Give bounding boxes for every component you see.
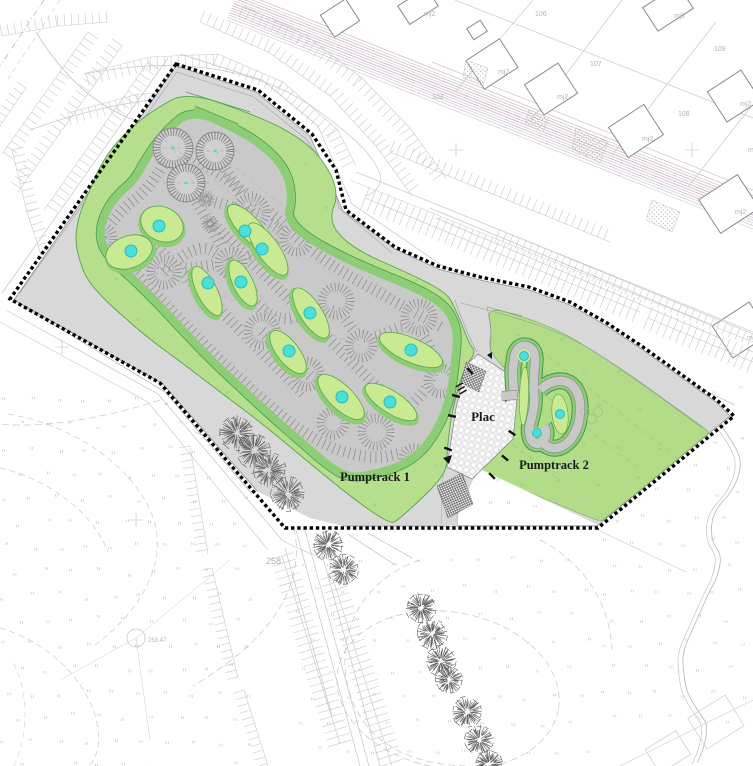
svg-text:mj2: mj2 xyxy=(674,13,685,20)
svg-text:mj2: mj2 xyxy=(498,69,509,76)
svg-text:mj2: mj2 xyxy=(735,209,746,216)
svg-text:mj2: mj2 xyxy=(642,136,653,143)
svg-text:107: 107 xyxy=(590,61,602,68)
svg-text:Pumptrack 1: Pumptrack 1 xyxy=(340,470,410,484)
svg-text:106: 106 xyxy=(535,11,547,18)
svg-text:258: 258 xyxy=(266,556,281,566)
svg-text:mj2: mj2 xyxy=(740,101,751,108)
svg-text:Pumptrack 2: Pumptrack 2 xyxy=(519,458,589,472)
svg-text:mj2: mj2 xyxy=(557,94,568,101)
svg-text:253.47: 253.47 xyxy=(148,638,167,644)
svg-text:m]2: m]2 xyxy=(748,147,753,154)
svg-text:103: 103 xyxy=(432,94,444,101)
svg-text:mj2: mj2 xyxy=(424,11,435,18)
svg-text:109: 109 xyxy=(714,46,726,53)
svg-text:Plac: Plac xyxy=(471,409,495,424)
svg-text:108: 108 xyxy=(678,111,690,118)
